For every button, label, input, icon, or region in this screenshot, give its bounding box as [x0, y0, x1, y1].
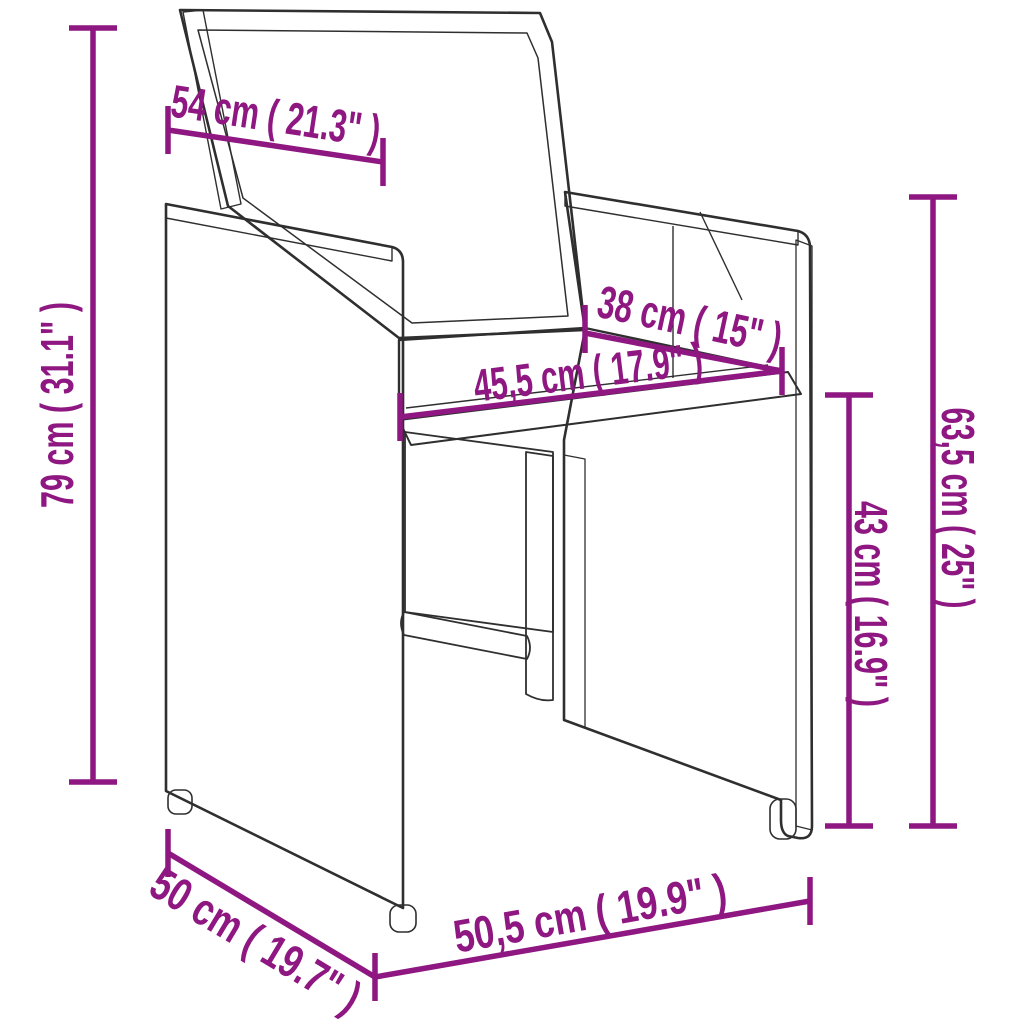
dimension-label-total-height: 79 cm ( 31.1" )	[31, 302, 83, 508]
dimension-label-armrest-height: 63,5 cm ( 25" )	[932, 408, 984, 609]
left-arm-panel	[166, 204, 403, 908]
diagram-canvas: 79 cm ( 31.1" ) 54 cm ( 21.3" ) 38 cm ( …	[0, 0, 1024, 1024]
dimension-annotations: 79 cm ( 31.1" ) 54 cm ( 21.3" ) 38 cm ( …	[31, 28, 984, 1023]
chair-line-art	[166, 10, 812, 932]
front-right-leg	[526, 452, 553, 700]
right-armrest-top-wrap	[565, 192, 798, 245]
dimension-base-width: 50,5 cm ( 19.9" )	[375, 863, 810, 1001]
dimension-base-depth: 50 cm ( 19.7" )	[141, 829, 375, 1023]
product-dimension-diagram: 79 cm ( 31.1" ) 54 cm ( 21.3" ) 38 cm ( …	[0, 0, 1024, 1024]
right-arm-inner-edge-wrap	[564, 455, 585, 728]
left-armrest-top-wrap	[166, 204, 392, 261]
front-rail	[401, 612, 530, 659]
dimension-armrest-height: 63,5 cm ( 25" )	[909, 197, 984, 826]
dimension-total-height: 79 cm ( 31.1" )	[31, 28, 117, 782]
dimension-seat-height: 43 cm ( 16.9" )	[825, 395, 897, 826]
dimension-label-base-width: 50,5 cm ( 19.9" )	[450, 863, 731, 962]
dimension-label-base-depth: 50 cm ( 19.7" )	[141, 857, 370, 1023]
left-arm-inner-face	[405, 432, 553, 632]
under-seat-structure	[401, 432, 585, 728]
dimension-backrest-width: 54 cm ( 21.3" )	[168, 75, 384, 186]
dimension-label-seat-width: 45,5 cm ( 17.9" )	[471, 332, 706, 412]
dimension-label-seat-height: 43 cm ( 16.9" )	[845, 501, 897, 707]
armrest-brace	[700, 212, 742, 300]
